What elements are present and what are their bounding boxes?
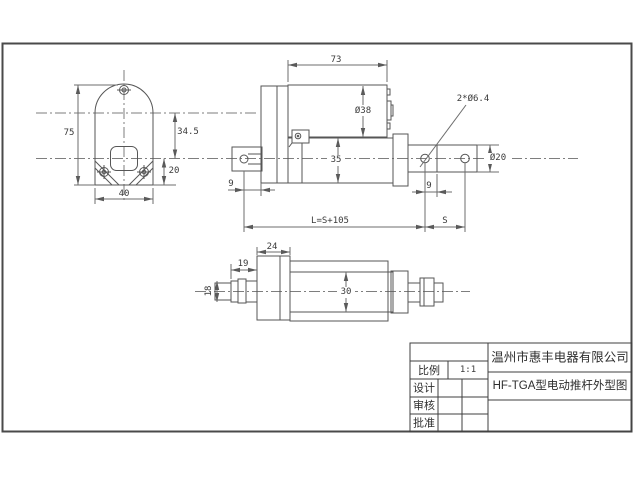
label-pin-holes: 2*Ø6.4 [457,93,490,104]
dim-mounting-length: L=S+105 [311,216,349,226]
bottom-view [215,256,443,321]
dim-gear-housing-width: 24 [267,242,278,252]
cad-drawing: 75 34.5 20 40 [0,0,640,480]
front-view [232,85,477,186]
drawing-title: HF-TGA型电动推杆外型图 [493,378,628,392]
dim-overall-height: 75 [64,128,75,138]
center-lines [36,70,578,292]
front-collar [393,134,408,186]
title-block: 比例 1:1 设计 审核 批准 温州市惠丰电器有限公司 HF-TGA型电动推杆外… [410,343,632,432]
check-label: 审核 [413,398,435,412]
scale-label: 比例 [418,363,440,377]
motor-connector [387,101,391,120]
dim-motor-length: 73 [331,55,342,65]
dim-motor-diameter: Ø38 [355,105,371,116]
scale-value: 1:1 [460,365,476,375]
design-label: 设计 [413,382,435,395]
dim-shaft-length: 19 [238,259,249,269]
dim-arc-center-to-axis: 34.5 [177,127,199,137]
side-view-dimensions: 75 34.5 20 40 [64,85,199,204]
gear-housing [261,86,288,183]
dim-axis-to-bottom: 20 [169,166,180,176]
front-view-dimensions: 73 Ø38 35 9 9 2*Ø6.4 Ø20 [228,55,512,232]
approve-label: 批准 [413,416,435,430]
dim-tube-height: 35 [331,155,342,165]
dim-width: 40 [119,189,130,199]
dim-stroke: S [442,216,447,226]
rod-bottom [408,283,420,302]
dim-rod-hole-offset: 9 [426,181,431,191]
company-name: 温州市惠丰电器有限公司 [491,350,629,365]
dim-rear-pin-offset: 9 [228,179,233,189]
gear-housing-bottom [257,256,290,320]
dim-tube-diameter: 30 [341,287,352,297]
cad-drawing-sheet: 75 34.5 20 40 [0,0,640,480]
dim-rod-diameter: Ø20 [490,152,506,163]
dim-shaft-diameter: 18 [204,286,214,297]
